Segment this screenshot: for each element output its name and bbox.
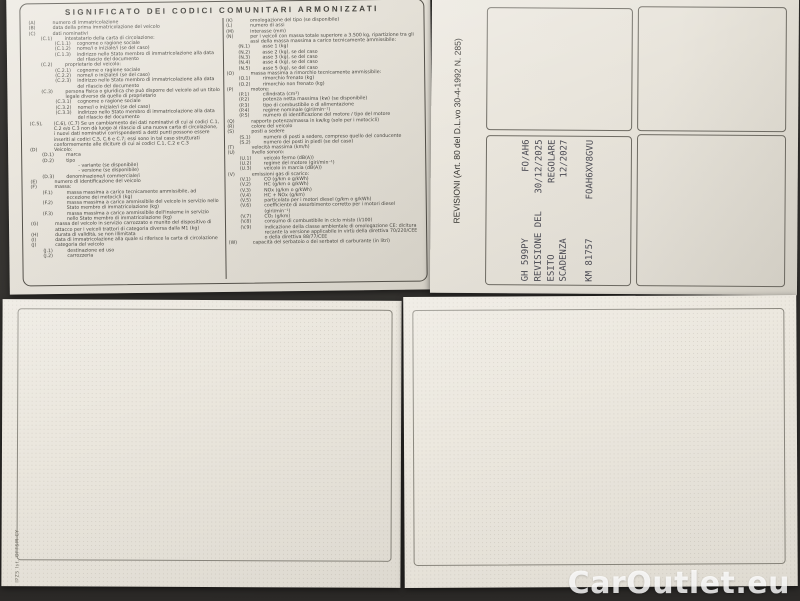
- legend-line-code: (C.3.3): [56, 111, 78, 122]
- revision-stamp: GH 599PY FO/AH6 REVISIONE DEL 30/12/2025…: [520, 139, 598, 282]
- revision-box-stamped: GH 599PY FO/AH6 REVISIONE DEL 30/12/2025…: [485, 135, 632, 286]
- page-revisioni: REVISIONI (Art. 80 del D.L.vo 30-4-1992 …: [430, 0, 799, 295]
- stamp-row: SCADENZA 12/2027: [558, 140, 572, 282]
- legend-line: (W) capacità del serbatoio o dei serbato…: [229, 239, 419, 247]
- legend-line-code: (W): [229, 241, 253, 247]
- stamp-value: 30/12/2025: [533, 139, 546, 193]
- legend-line-code: (G): [31, 222, 55, 233]
- legend-right-column: (K) omologazione del tipo (se disponibil…: [222, 16, 422, 279]
- stamp-row: ESITO REGOLARE: [545, 140, 559, 282]
- stamp-value: 12/2027: [559, 140, 572, 178]
- legend-line: (J.2) carrozzeria: [31, 252, 222, 260]
- legend-line-code: (C.1.3): [55, 53, 77, 64]
- stamp-row: KM 81757 FOAH6XV8GVU: [584, 140, 598, 282]
- blank-frame: [16, 308, 392, 562]
- stamp-label: KM 81757: [584, 238, 597, 281]
- legend-frame: SIGNIFICATO DEI CODICI COMUNITARI ARMONI…: [19, 0, 427, 286]
- stamp-value: FO/AH6: [520, 139, 533, 172]
- revision-box-empty-1: [486, 7, 633, 131]
- legend-line-code: (V.6): [240, 204, 264, 215]
- legend-line-text: indicazione della classe ambientale di o…: [265, 223, 419, 241]
- legend-line-text: carrozzeria: [67, 252, 222, 259]
- legend-line: (C.5), (C.6), (C.7) Se un cambiamento de…: [30, 120, 221, 149]
- stamp-label: SCADENZA: [558, 238, 571, 281]
- legend-line-text: capacità del serbatoio o dei serbatoi di…: [253, 239, 419, 246]
- legend-left-column: (A) numero di immatricolazione (B) data …: [25, 18, 225, 281]
- revisioni-header: REVISIONI (Art. 80 del D.L.vo 30-4-1992 …: [451, 13, 463, 249]
- legend-line-code: (V.9): [241, 225, 265, 241]
- legend-line-code: (C.5),: [30, 122, 54, 149]
- legend-line-code: (F.2): [43, 201, 67, 212]
- printer-mark: IPZS Ist. OFFSM-CY: [16, 529, 21, 582]
- revision-box-empty-2: [637, 6, 787, 132]
- photo-background: SIGNIFICATO DEI CODICI COMUNITARI ARMONI…: [0, 0, 800, 600]
- legend-columns: (A) numero di immatricolazione (B) data …: [25, 16, 421, 282]
- page-legend: SIGNIFICATO DEI CODICI COMUNITARI ARMONI…: [6, 0, 434, 295]
- legend-line-code: (C.2.3): [55, 79, 77, 90]
- stamp-label: REVISIONE DEL: [532, 211, 545, 282]
- page-bottom-right: [403, 295, 798, 588]
- watermark: CarOutlet.eu: [568, 566, 790, 601]
- stamp-label: ESITO: [545, 254, 558, 281]
- revision-box-empty-3: [636, 134, 786, 287]
- stamp-row: GH 599PY FO/AH6: [520, 139, 534, 281]
- stamp-row: REVISIONE DEL 30/12/2025: [532, 139, 546, 281]
- legend-line-code: (F.1): [43, 190, 67, 201]
- page-bottom-left: [1, 299, 401, 588]
- legend-line-code: (J.2): [43, 254, 67, 260]
- blank-frame: [412, 308, 785, 566]
- stamp-value: REGOLARE: [546, 140, 559, 183]
- stamp-value: FOAH6XV8GVU: [584, 140, 597, 200]
- legend-line-code: (F.3): [43, 212, 67, 223]
- stamp-label: GH 599PY: [520, 238, 533, 281]
- legend-line-text: (C.6), (C.7) Se un cambiamento dei dati …: [54, 120, 221, 149]
